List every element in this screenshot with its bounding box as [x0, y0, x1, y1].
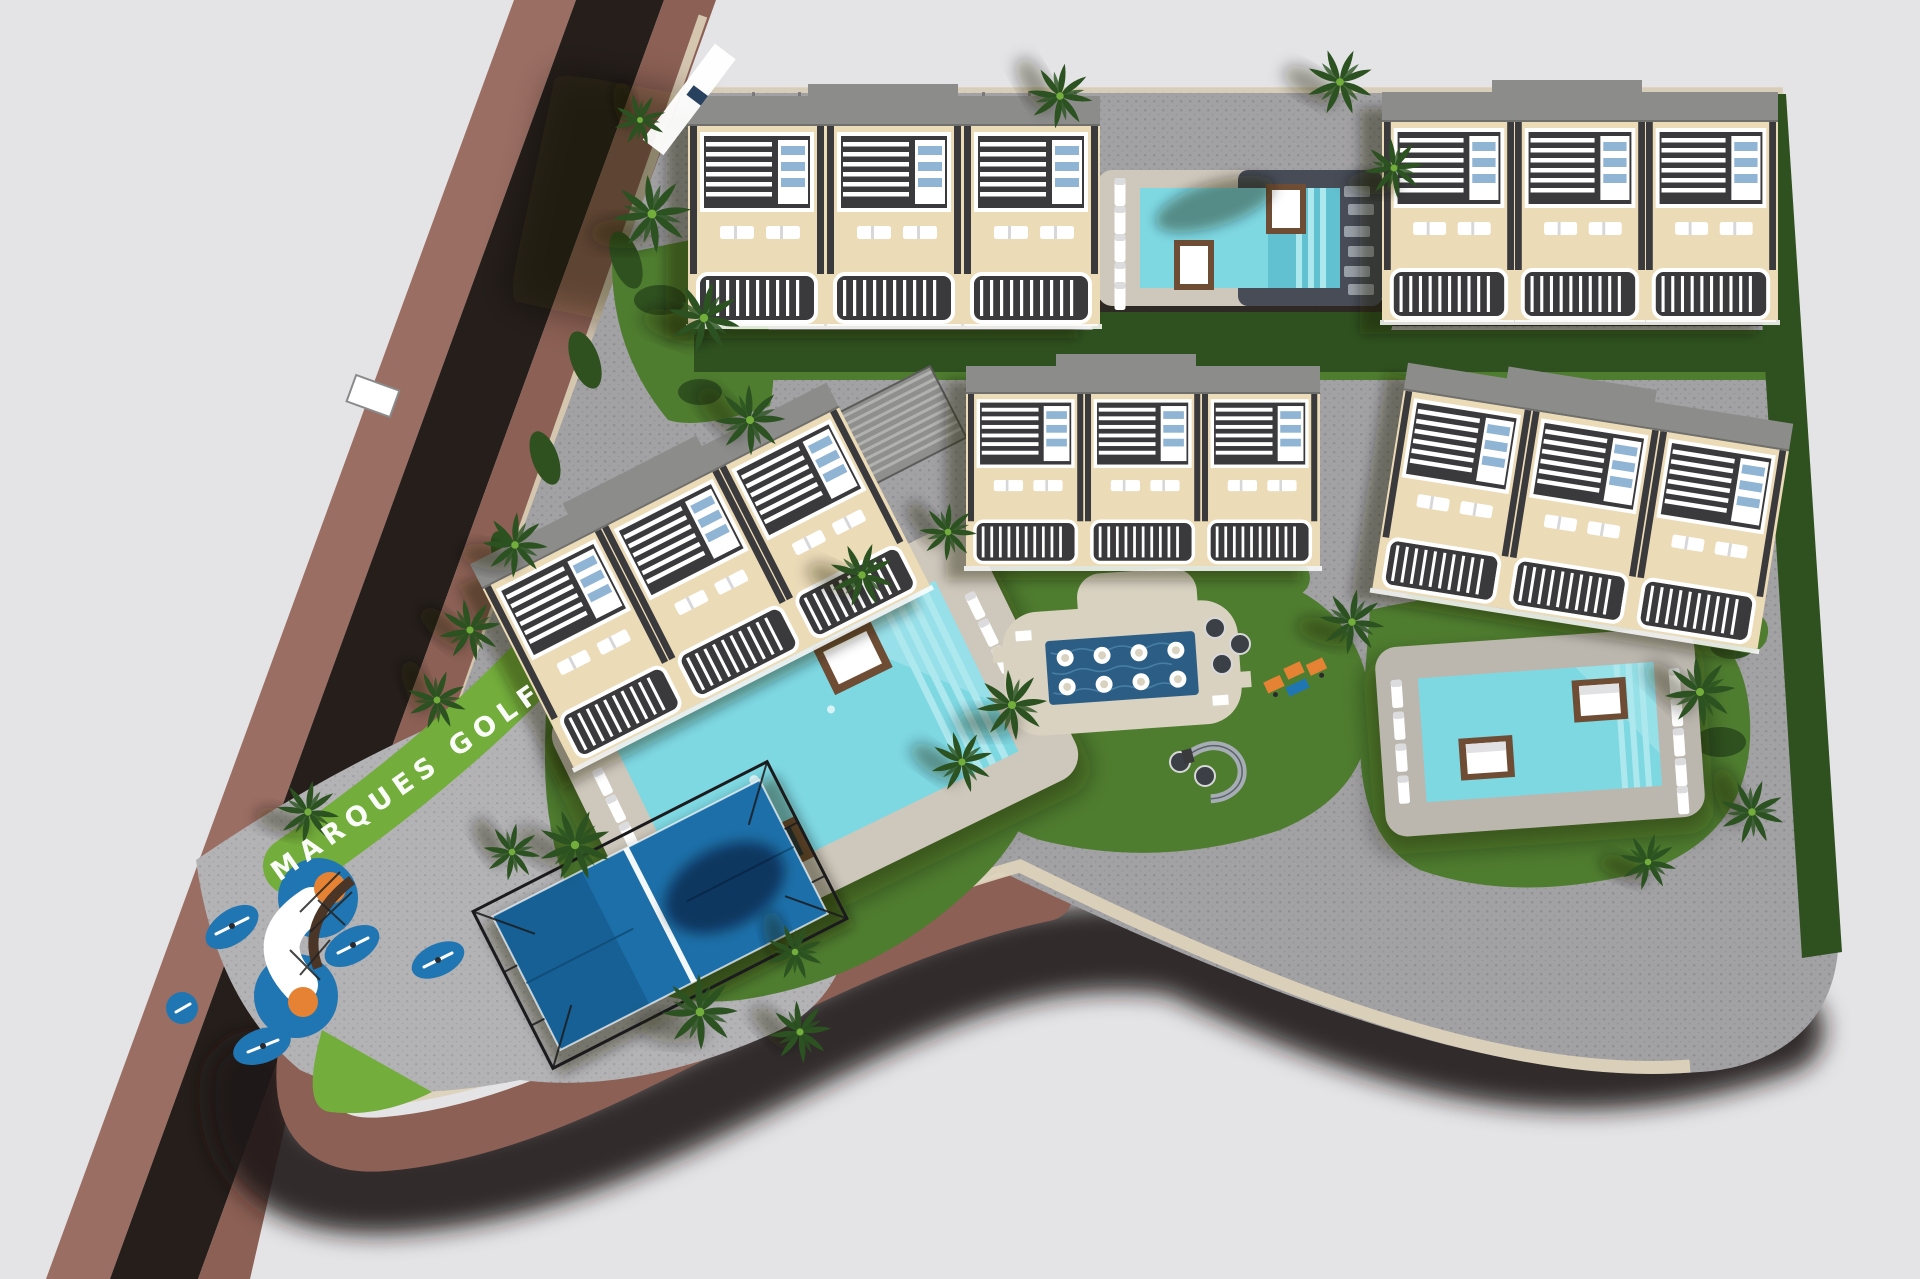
- site-plan-svg: MARQUES GOLF: [0, 0, 1920, 1279]
- pool-right: [1362, 626, 1716, 856]
- pool-top-loungers-left: [1115, 178, 1126, 310]
- building-b-roof: [1382, 92, 1778, 122]
- play-pad-orange-2: [288, 987, 318, 1017]
- building-c: [946, 354, 1322, 580]
- site-plan-render: MARQUES GOLF: [0, 0, 1920, 1279]
- pool-top-hedge: [1092, 312, 1392, 336]
- building-c-roof: [966, 366, 1320, 394]
- building-b: [1360, 80, 1780, 334]
